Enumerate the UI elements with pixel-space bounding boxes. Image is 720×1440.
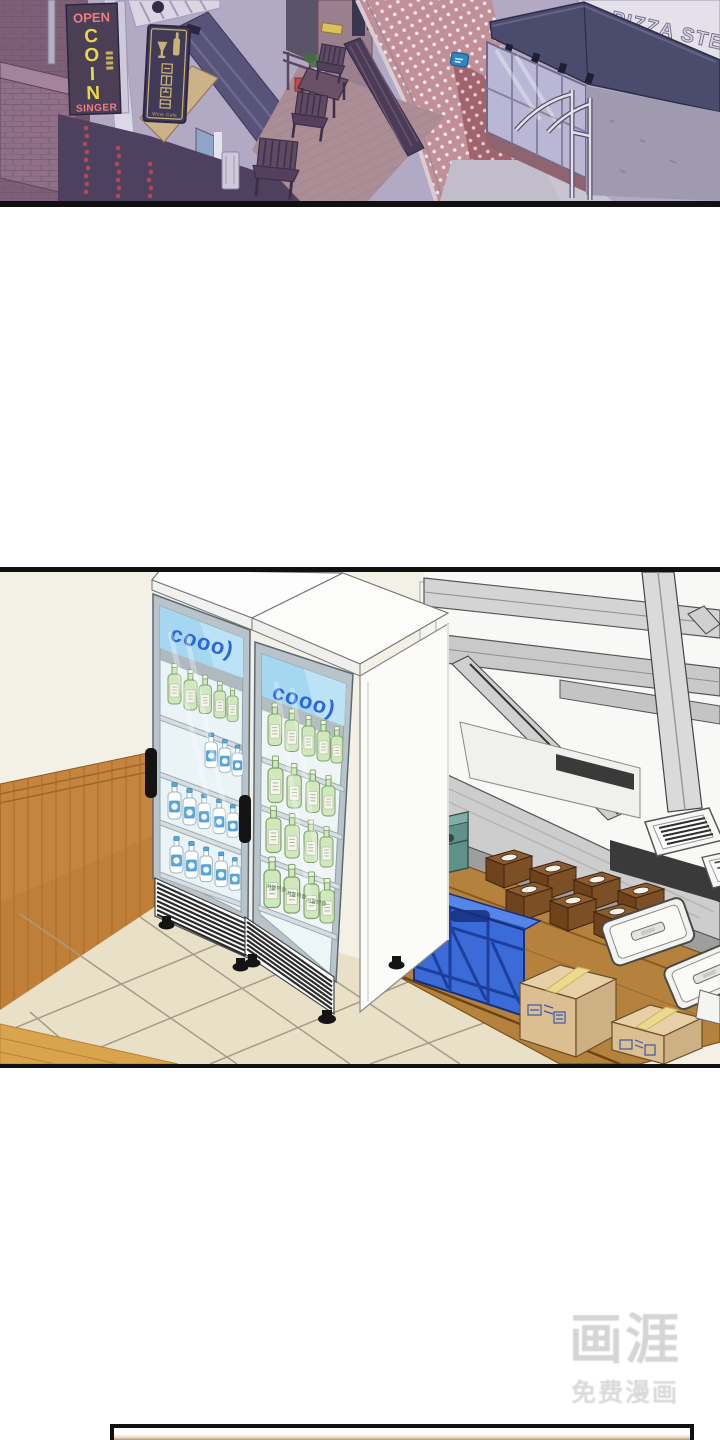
cardboard-box <box>520 965 616 1057</box>
balcony-lamp-icon <box>152 1 164 13</box>
karaoke-sign-open: OPEN <box>73 9 110 25</box>
panel-stockroom-scene: cooo) <box>0 567 720 1068</box>
next-panel-content-hint <box>114 1434 690 1440</box>
fridge-door-handle[interactable] <box>239 795 251 843</box>
crate-handle <box>450 910 490 922</box>
street-pole <box>48 0 55 64</box>
street-scene-art: PIZZA STE <box>0 0 720 201</box>
fridge-door-handle[interactable] <box>145 748 157 798</box>
stockroom-scene-art: cooo) <box>0 572 720 1064</box>
karaoke-sign-bottom: SINGER <box>76 102 118 114</box>
next-panel-partial <box>110 1424 694 1440</box>
karaoke-sign: OPEN C O I N SINGER <box>66 1 129 115</box>
platform-watermark: 画涯 免费漫画 <box>540 1312 710 1409</box>
fridge-left-door: cooo) <box>145 594 250 972</box>
white-box <box>696 990 720 1024</box>
svg-text:N: N <box>86 83 100 104</box>
svg-text:I: I <box>90 64 96 85</box>
trash-bin <box>222 152 239 189</box>
webtoon-page: PIZZA STE <box>0 0 720 1440</box>
watermark-logo: 画涯 <box>540 1312 710 1369</box>
panel-street-scene: PIZZA STE <box>0 0 720 207</box>
watermark-subtitle: 免费漫画 <box>540 1373 710 1409</box>
blue-street-object <box>450 52 469 67</box>
